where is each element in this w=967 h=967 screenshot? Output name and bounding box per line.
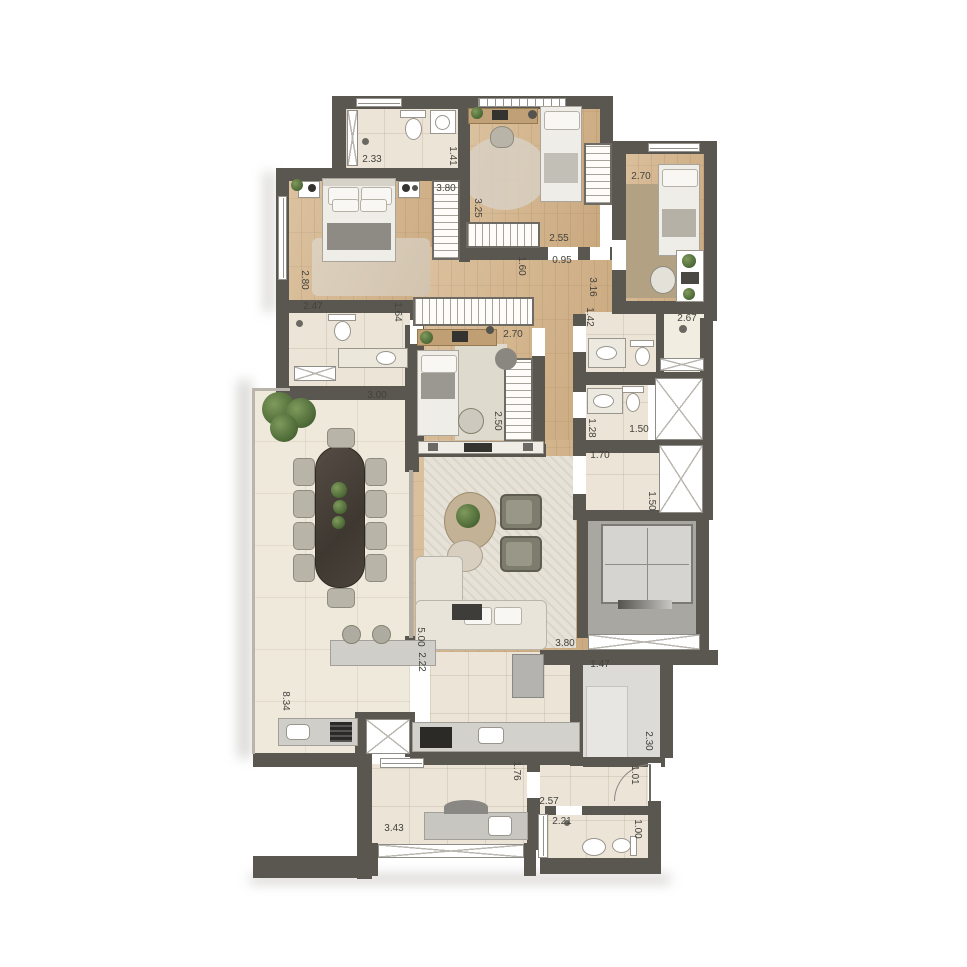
dim-label: 1.41 bbox=[447, 146, 457, 165]
shower-head-icon bbox=[362, 138, 369, 145]
bbq-sink bbox=[286, 724, 310, 740]
blanket bbox=[544, 153, 578, 183]
wall bbox=[540, 650, 718, 665]
dim-label: 2.30 bbox=[643, 731, 653, 750]
wall bbox=[405, 444, 419, 472]
hall-wardrobe bbox=[413, 297, 534, 326]
wall bbox=[332, 96, 346, 178]
duct-shaft bbox=[655, 378, 703, 440]
toilet-bowl bbox=[635, 347, 650, 366]
sink-basin bbox=[596, 346, 617, 360]
plant-icon bbox=[456, 504, 480, 528]
dining-chair bbox=[327, 428, 355, 448]
wall bbox=[253, 753, 365, 767]
terrace-railing bbox=[252, 388, 255, 754]
toilet-tank bbox=[630, 836, 637, 856]
wall bbox=[704, 141, 717, 321]
bedroom2-bed bbox=[540, 106, 582, 202]
wall bbox=[648, 806, 661, 861]
armchair bbox=[500, 536, 542, 572]
wall bbox=[532, 356, 545, 446]
cooktop-icon bbox=[420, 727, 452, 748]
toilet-tank bbox=[328, 314, 356, 321]
dim-label: 1.47 bbox=[590, 660, 609, 670]
decor-icon bbox=[412, 185, 418, 191]
plant-icon bbox=[291, 179, 303, 191]
toilet-tank bbox=[630, 340, 654, 347]
dim-label: 3.25 bbox=[472, 198, 482, 217]
wall bbox=[410, 750, 582, 765]
window bbox=[278, 196, 287, 280]
laundry-counter bbox=[424, 812, 528, 840]
dim-label: 3.16 bbox=[587, 277, 597, 296]
dim-label: 3.80 bbox=[436, 184, 455, 194]
window bbox=[380, 758, 424, 768]
plant-icon bbox=[420, 331, 433, 344]
sink-basin bbox=[593, 394, 614, 408]
bedroom4-door bbox=[532, 328, 545, 356]
elevator-door bbox=[618, 600, 672, 609]
toilet-bowl bbox=[334, 321, 351, 341]
decor-icon bbox=[523, 443, 533, 451]
duct-shaft bbox=[659, 445, 703, 513]
shower-head-icon bbox=[296, 320, 303, 327]
wall bbox=[660, 652, 673, 758]
dining-chair bbox=[365, 554, 387, 582]
dim-label: 5.00 bbox=[415, 627, 425, 646]
dim-label: 1.76 bbox=[511, 761, 521, 780]
dining-chair bbox=[365, 522, 387, 550]
plant-icon bbox=[471, 107, 483, 119]
hall-door bbox=[590, 247, 610, 260]
desk-chair bbox=[650, 266, 676, 294]
toilet-bowl bbox=[612, 838, 631, 853]
grill-icon bbox=[330, 722, 352, 742]
shower-glass bbox=[347, 110, 358, 166]
wall bbox=[368, 843, 378, 876]
dining-chair bbox=[365, 490, 387, 518]
bathroom4-door bbox=[573, 392, 586, 418]
dim-label: 3.80 bbox=[555, 639, 574, 649]
sink-basin bbox=[582, 838, 606, 856]
dim-label: 3.00 bbox=[367, 391, 386, 401]
dim-label: 1.60 bbox=[516, 256, 526, 275]
wall bbox=[524, 843, 536, 876]
dim-label: 2.57 bbox=[539, 797, 558, 807]
kitchen-shaft bbox=[366, 719, 410, 754]
entry-hall-closet bbox=[586, 686, 628, 758]
elevator-car bbox=[601, 524, 693, 604]
wall bbox=[577, 517, 588, 638]
tv-icon bbox=[464, 443, 492, 452]
bedroom2-wardrobe bbox=[466, 222, 540, 248]
plant-icon bbox=[270, 414, 298, 442]
desk-chair bbox=[490, 126, 514, 148]
elevator-vent bbox=[588, 634, 700, 650]
dining-chair bbox=[293, 554, 315, 582]
sink-basin bbox=[376, 351, 396, 365]
building-shadow-master bbox=[264, 172, 274, 312]
toilet-tank bbox=[400, 110, 426, 118]
laptop-icon bbox=[492, 110, 508, 120]
dim-label: 0.95 bbox=[552, 256, 571, 266]
wall bbox=[276, 300, 289, 400]
master-bed bbox=[322, 178, 396, 262]
window bbox=[648, 143, 700, 152]
dim-label: 1.42 bbox=[584, 307, 594, 326]
toilet-tank bbox=[622, 386, 644, 393]
building-shadow-left bbox=[238, 380, 251, 758]
dim-label: 2.70 bbox=[503, 330, 522, 340]
kitchen-sink bbox=[478, 727, 504, 744]
plant-icon bbox=[332, 516, 345, 529]
bedroom4-bed bbox=[417, 350, 459, 436]
lamp-icon bbox=[402, 184, 410, 192]
dining-chair bbox=[293, 458, 315, 486]
dim-label: 2.33 bbox=[362, 155, 381, 165]
dining-chair bbox=[293, 522, 315, 550]
lamp-icon bbox=[308, 184, 316, 192]
pillow bbox=[421, 355, 457, 373]
floor-plan: 2.33 1.41 3.80 3.25 2.55 0.95 1.60 2.70 … bbox=[0, 0, 967, 967]
plant-icon bbox=[331, 482, 347, 498]
wc-vent bbox=[538, 814, 548, 858]
blanket bbox=[421, 373, 455, 399]
wall bbox=[253, 856, 370, 878]
dim-label: 1.00 bbox=[632, 819, 642, 838]
dim-label: 1.28 bbox=[586, 418, 596, 437]
pillow bbox=[544, 111, 580, 130]
laundry-window bbox=[378, 844, 524, 858]
pillow bbox=[332, 199, 359, 212]
pillow bbox=[360, 199, 387, 212]
headboard bbox=[323, 179, 395, 186]
sink-basin bbox=[435, 115, 450, 130]
laptop-icon bbox=[452, 331, 468, 342]
dim-label: 1.70 bbox=[590, 451, 609, 461]
terrace-glass-door bbox=[409, 470, 413, 638]
dim-label: 2.47 bbox=[303, 302, 322, 312]
toilet-bowl bbox=[626, 393, 640, 412]
vanity-counter bbox=[338, 348, 408, 368]
armchair bbox=[500, 494, 542, 530]
decor-icon bbox=[428, 443, 438, 451]
dim-label: 2.67 bbox=[677, 314, 696, 324]
dining-chair bbox=[327, 588, 355, 608]
wall bbox=[612, 152, 626, 314]
dim-label: 1.50 bbox=[629, 425, 648, 435]
dim-label: 2.22 bbox=[416, 652, 426, 671]
window bbox=[356, 98, 402, 107]
bar-stool bbox=[342, 625, 361, 644]
laundry-sink bbox=[488, 816, 512, 836]
desk-lamp-icon bbox=[528, 110, 537, 119]
bar-stool bbox=[372, 625, 391, 644]
plant-icon bbox=[683, 288, 695, 300]
throw-blanket bbox=[452, 604, 482, 620]
bath-bench bbox=[294, 366, 336, 381]
armchair-seat bbox=[506, 500, 532, 524]
shower-drain-icon bbox=[679, 325, 687, 333]
blanket bbox=[327, 223, 391, 250]
pouf bbox=[458, 408, 484, 434]
wc-door bbox=[556, 806, 582, 815]
foyer-opening bbox=[573, 456, 586, 494]
dim-label: 8.34 bbox=[280, 691, 290, 710]
bedroom2-wardrobe-side bbox=[584, 143, 612, 205]
blanket bbox=[662, 209, 696, 237]
dining-chair bbox=[293, 490, 315, 518]
pouf bbox=[495, 348, 517, 370]
dim-label: 2.80 bbox=[299, 270, 309, 289]
dim-label: 2.21 bbox=[552, 817, 571, 827]
dining-chair bbox=[365, 458, 387, 486]
duct-vent bbox=[660, 358, 704, 371]
bathroom3-door bbox=[573, 326, 586, 352]
dim-label: 1.64 bbox=[392, 302, 402, 321]
laundry-basin bbox=[444, 800, 488, 814]
dim-label: 2.50 bbox=[492, 411, 502, 430]
bedroom4-wardrobe bbox=[504, 358, 533, 442]
plant-icon bbox=[333, 500, 347, 514]
dim-label: 2.70 bbox=[631, 172, 650, 182]
bedroom3-door bbox=[612, 240, 626, 270]
terrace-railing bbox=[252, 388, 290, 391]
plant-icon bbox=[682, 254, 696, 268]
desk-lamp-icon bbox=[486, 326, 494, 334]
toilet-bowl bbox=[405, 118, 422, 140]
books-icon bbox=[681, 272, 699, 284]
dim-label: 1.50 bbox=[646, 491, 656, 510]
bedroom3-bed bbox=[658, 164, 700, 256]
pillow bbox=[662, 169, 698, 187]
wall bbox=[612, 301, 717, 314]
dim-label: 3.43 bbox=[384, 824, 403, 834]
laundry-door bbox=[527, 772, 540, 798]
dim-label: 1.01 bbox=[629, 765, 639, 784]
wall bbox=[540, 858, 661, 874]
armchair-seat bbox=[506, 542, 532, 566]
dim-label: 2.55 bbox=[549, 234, 568, 244]
fridge bbox=[512, 654, 544, 698]
cushion bbox=[494, 607, 522, 625]
